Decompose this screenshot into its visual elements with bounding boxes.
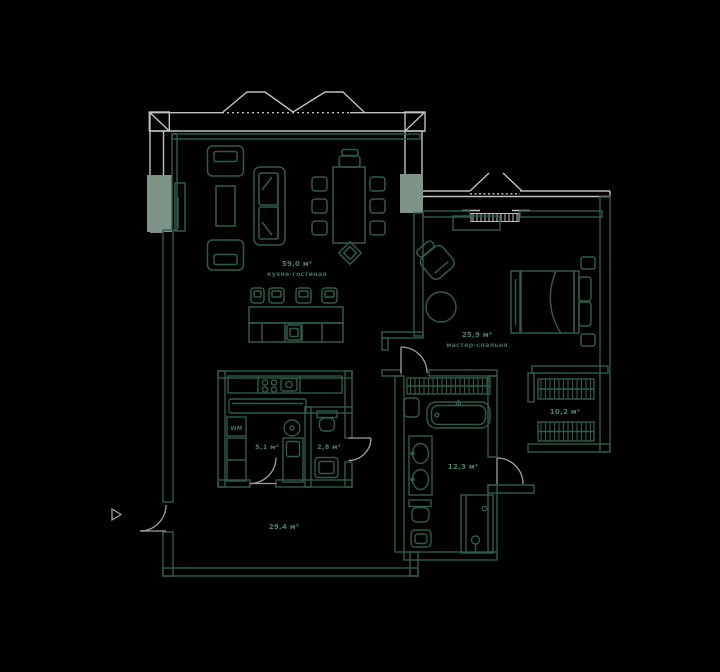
bar-stools: [251, 288, 337, 303]
pillar-middle: [400, 174, 423, 213]
pouf: [426, 292, 456, 322]
kitchen-sink: [281, 379, 297, 392]
wc-sink: [315, 458, 338, 478]
bedroom-armchair: [412, 237, 456, 282]
bathroom-area-label: 12,3 м²: [448, 463, 479, 471]
closet-rail: [538, 422, 594, 441]
window-threshold: [471, 214, 519, 222]
window-bay: [503, 173, 522, 191]
bathtub: [427, 400, 490, 428]
floor-plan-svg: 59,0 м² кухня-гостиная 25,9 м² мастер-сп…: [0, 0, 720, 672]
wc-door: [349, 438, 372, 461]
living-name-label: кухня-гостиная: [267, 271, 327, 278]
dining-chairs: [312, 150, 385, 265]
towel-radiator: [407, 378, 490, 394]
hallway-area-label: 29,4 м²: [269, 523, 300, 531]
bed-bench: [511, 271, 520, 333]
bedroom-door: [401, 347, 427, 373]
washing-machine-label: WM: [230, 426, 242, 432]
appliance-column: [283, 438, 303, 482]
kitchen-island: [249, 307, 343, 342]
dining-table: [333, 167, 365, 243]
pillar-left: [147, 175, 172, 232]
window-bay: [223, 92, 364, 112]
kitchen-door: [250, 458, 276, 484]
kitchen-fixtures: [227, 376, 342, 482]
toilet: [409, 500, 431, 522]
bathroom-door: [497, 458, 523, 484]
bedroom-area-label: 25,9 м²: [462, 331, 493, 339]
nightstand: [581, 257, 595, 269]
kitchen-cabinet: [227, 438, 246, 481]
window-bay: [470, 173, 489, 191]
cooktop-icon: [262, 380, 276, 392]
kitchen-shelf: [229, 399, 306, 413]
closet-rail: [538, 379, 594, 399]
double-vanity: [409, 436, 432, 495]
round-basin: [284, 420, 300, 436]
entry-door: [140, 505, 166, 531]
wc-area-label: 2,8 м²: [317, 443, 341, 451]
interior-walls: [163, 134, 610, 576]
coffee-table: [216, 186, 235, 226]
living-room-furniture: [175, 146, 385, 342]
sofa: [254, 167, 285, 245]
kitchen-area-label: 5,1 м²: [255, 443, 279, 451]
armchair: [208, 240, 244, 270]
bidet: [411, 530, 431, 547]
bed: [521, 271, 591, 333]
floor-plan-stage: 59,0 м² кухня-гостиная 25,9 м² мастер-сп…: [0, 0, 720, 672]
wardrobe-area-label: 10,2 м²: [550, 408, 581, 416]
bedroom-name-label: мастер-спальня: [446, 342, 508, 349]
corner-shelf: [404, 398, 419, 417]
entry-arrow-icon: [112, 509, 121, 520]
nightstand: [581, 334, 595, 346]
bedroom-furniture: [412, 237, 595, 346]
living-area-label: 59,0 м²: [282, 260, 313, 268]
armchair: [208, 146, 244, 176]
toilet: [317, 411, 337, 431]
